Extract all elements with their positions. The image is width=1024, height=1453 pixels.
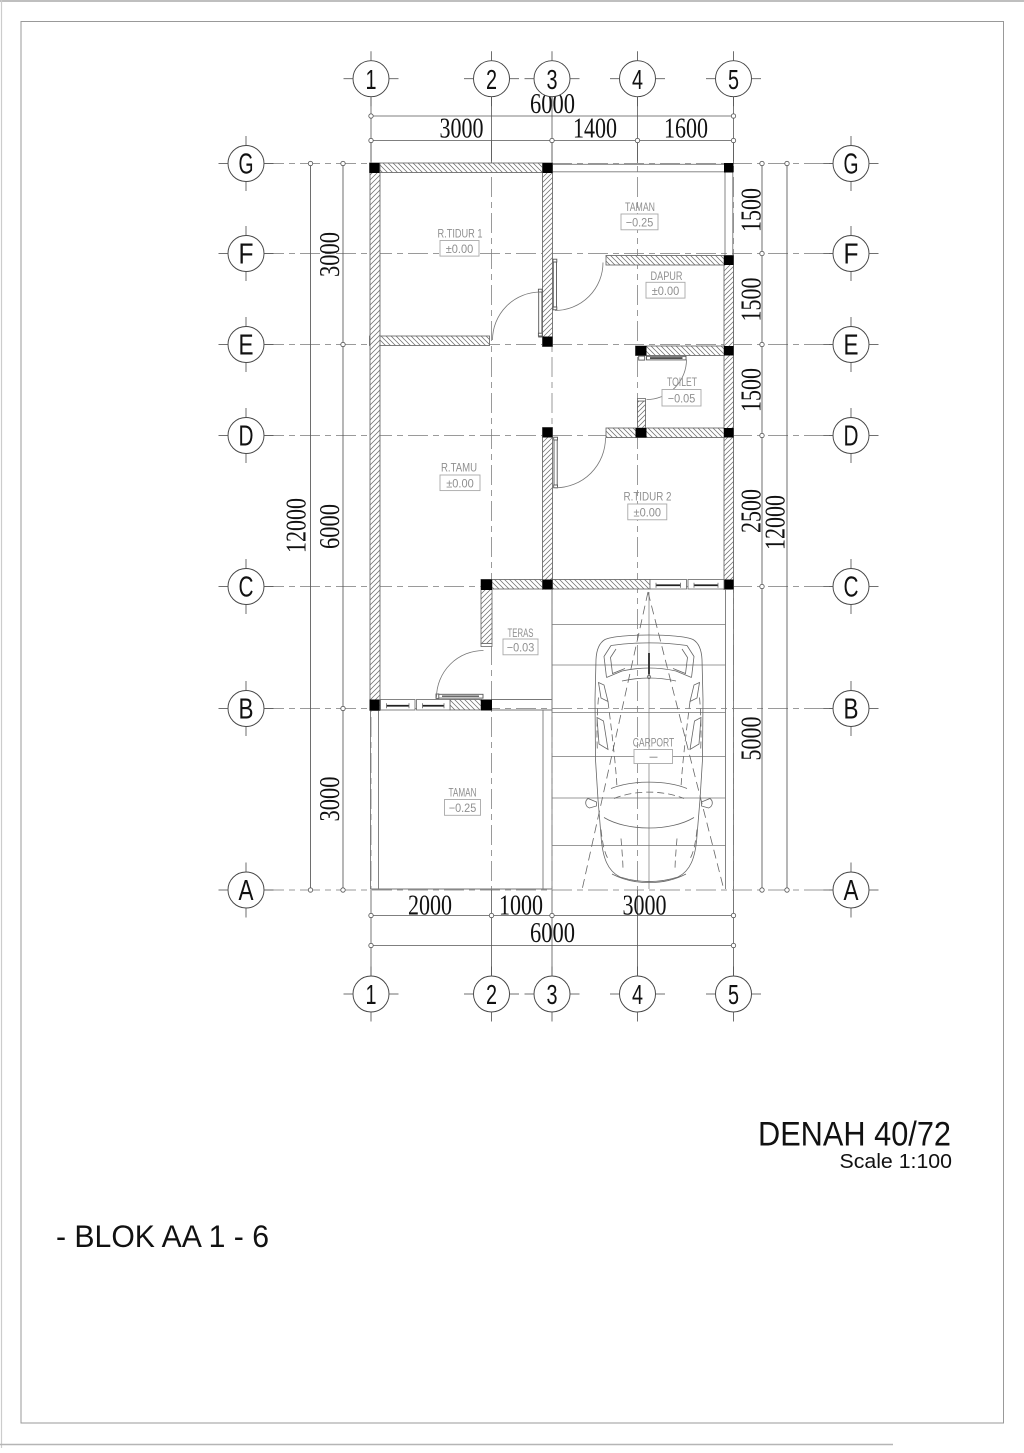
svg-text:G: G bbox=[844, 149, 859, 181]
svg-text:2: 2 bbox=[486, 64, 497, 95]
svg-text:DAPUR: DAPUR bbox=[651, 271, 683, 283]
svg-text:−0.03: −0.03 bbox=[507, 641, 535, 655]
svg-text:3000: 3000 bbox=[314, 777, 346, 822]
svg-text:3000: 3000 bbox=[623, 891, 667, 922]
svg-text:3000: 3000 bbox=[440, 114, 484, 145]
svg-text:5: 5 bbox=[728, 979, 739, 1010]
svg-text:B: B bbox=[239, 694, 254, 726]
svg-text:Scale 1:100: Scale 1:100 bbox=[840, 1151, 953, 1173]
svg-text:E: E bbox=[844, 330, 859, 362]
svg-text:1600: 1600 bbox=[664, 114, 708, 145]
svg-text:B: B bbox=[844, 694, 859, 726]
svg-text:4: 4 bbox=[632, 64, 643, 95]
svg-text:3: 3 bbox=[547, 979, 558, 1010]
svg-text:E: E bbox=[239, 330, 254, 362]
svg-text:12000: 12000 bbox=[760, 495, 792, 550]
svg-text:1500: 1500 bbox=[736, 368, 768, 412]
svg-text:1500: 1500 bbox=[736, 278, 768, 322]
svg-text:A: A bbox=[844, 875, 860, 907]
svg-text:DENAH 40/72: DENAH 40/72 bbox=[758, 1116, 951, 1154]
svg-text:−0.25: −0.25 bbox=[626, 216, 654, 230]
svg-text:D: D bbox=[239, 421, 254, 453]
svg-text:−0.25: −0.25 bbox=[449, 801, 477, 815]
svg-text:G: G bbox=[239, 149, 254, 181]
svg-text:- BLOK AA 1 - 6: - BLOK AA 1 - 6 bbox=[56, 1218, 269, 1254]
svg-text:A: A bbox=[239, 875, 255, 907]
svg-text:±0.00: ±0.00 bbox=[652, 284, 680, 298]
svg-text:1500: 1500 bbox=[736, 188, 768, 232]
svg-text:2000: 2000 bbox=[408, 891, 452, 922]
svg-text:6000: 6000 bbox=[314, 504, 346, 549]
svg-text:F: F bbox=[239, 239, 254, 271]
svg-text:±0.00: ±0.00 bbox=[634, 506, 662, 520]
svg-text:1400: 1400 bbox=[573, 114, 617, 145]
svg-text:TOILET: TOILET bbox=[667, 377, 697, 389]
svg-text:2: 2 bbox=[486, 979, 497, 1010]
svg-text:±0.00: ±0.00 bbox=[446, 242, 474, 256]
svg-text:−0.05: −0.05 bbox=[668, 392, 696, 406]
svg-text:1: 1 bbox=[366, 979, 377, 1010]
svg-text:1: 1 bbox=[366, 64, 377, 95]
svg-text:CARPORT: CARPORT bbox=[633, 738, 675, 750]
svg-text:3000: 3000 bbox=[314, 232, 346, 277]
svg-text:F: F bbox=[844, 239, 859, 271]
svg-text:4: 4 bbox=[632, 979, 643, 1010]
svg-text:6000: 6000 bbox=[530, 918, 575, 949]
svg-text:5: 5 bbox=[728, 64, 739, 95]
svg-text:R.TIDUR 2: R.TIDUR 2 bbox=[624, 492, 672, 504]
svg-text:3: 3 bbox=[547, 64, 558, 95]
svg-text:D: D bbox=[844, 421, 859, 453]
svg-text:C: C bbox=[844, 572, 859, 604]
svg-text:C: C bbox=[239, 572, 254, 604]
svg-text:TERAS: TERAS bbox=[508, 628, 534, 640]
svg-text:1000: 1000 bbox=[499, 891, 543, 922]
svg-text:R.TAMU: R.TAMU bbox=[441, 463, 477, 475]
svg-text:TAMAN: TAMAN bbox=[625, 202, 655, 214]
svg-text:TAMAN: TAMAN bbox=[449, 788, 477, 800]
svg-text:±0.00: ±0.00 bbox=[446, 476, 474, 490]
svg-text:R.TIDUR 1: R.TIDUR 1 bbox=[438, 229, 483, 241]
svg-text:5000: 5000 bbox=[736, 717, 768, 761]
svg-text:12000: 12000 bbox=[281, 498, 313, 553]
